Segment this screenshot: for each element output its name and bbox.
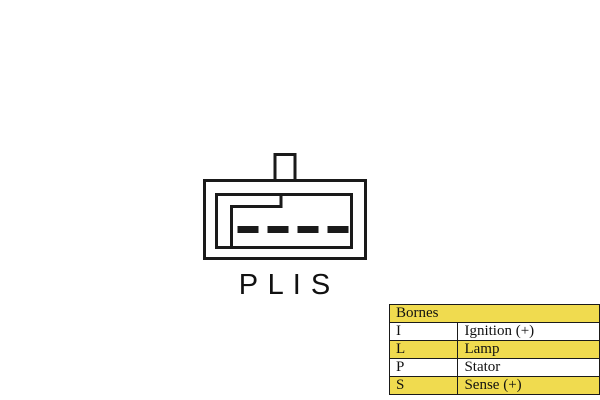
table-row-ignition: I Ignition (+) [390, 323, 600, 341]
function-cell: Stator [458, 359, 600, 377]
page-background: P L I S Bornes I Ignition (+) L Lamp P S… [0, 0, 600, 400]
function-cell: Ignition (+) [458, 323, 600, 341]
table-header-bornes: Bornes [390, 305, 600, 323]
terminal-cell: I [390, 323, 458, 341]
connector-diagram [200, 148, 372, 262]
function-cell: Lamp [458, 341, 600, 359]
connector-inner-housing [217, 195, 352, 248]
table-row-sense: S Sense (+) [390, 377, 600, 395]
function-cell: Sense (+) [458, 377, 600, 395]
terminals-table: Bornes I Ignition (+) L Lamp P Stator S … [389, 304, 600, 395]
connector-tab [275, 155, 295, 181]
pin-labels: P L I S [201, 269, 369, 302]
table-row-lamp: L Lamp [390, 341, 600, 359]
terminal-cell: P [390, 359, 458, 377]
table-header-row: Bornes [390, 305, 600, 323]
table-row-stator: P Stator [390, 359, 600, 377]
terminal-cell: L [390, 341, 458, 359]
terminal-cell: S [390, 377, 458, 395]
